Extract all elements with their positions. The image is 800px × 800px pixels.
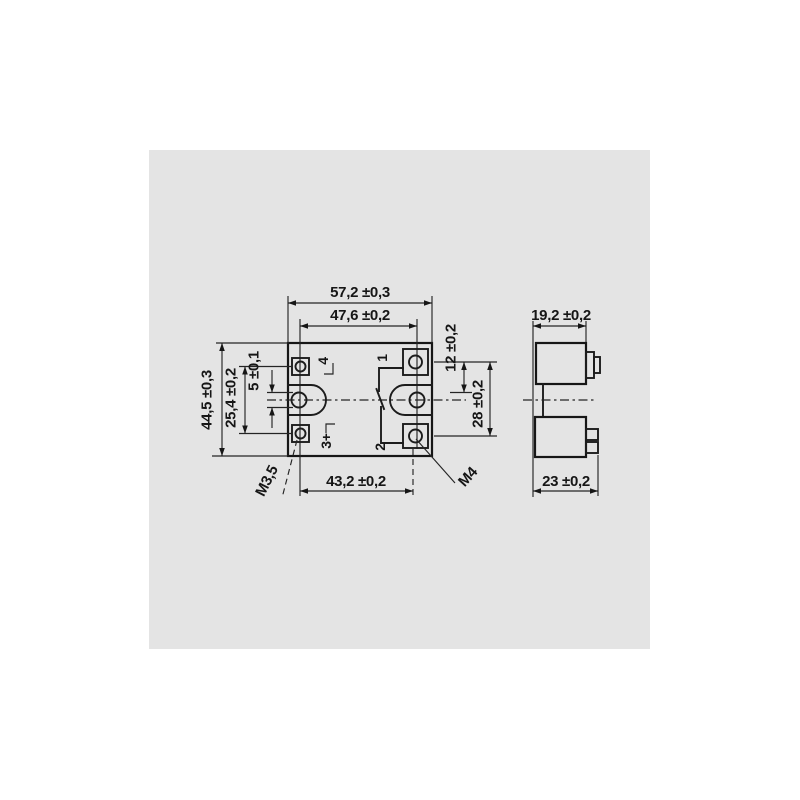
terminal-3-label: 3+ [318, 433, 334, 448]
dim-body-width: 57,2 ±0,3 [330, 284, 390, 301]
dim-overall-depth: 23 ±0,2 [542, 473, 590, 490]
dim-terminal-span: 43,2 ±0,2 [326, 473, 386, 490]
dim-terminal1-offset: 12 ±0,2 [443, 324, 460, 372]
terminal-1-label: 1 [374, 354, 390, 362]
dim-body-depth: 19,2 ±0,2 [531, 307, 591, 324]
page: 4 3+ 1 2 57,2 ±0,3 47,6 ±0,2 44,5 ±0,3 2… [0, 0, 800, 800]
dim-input-terminal-pitch: 25,4 ±0,2 [223, 368, 240, 428]
dim-mounting-hole-span: 47,6 ±0,2 [330, 307, 390, 324]
dim-output-terminal-pitch: 28 ±0,2 [470, 380, 487, 428]
dim-mounting-hole-diameter: 5 ±0,1 [246, 351, 263, 391]
terminal-2-label: 2 [372, 443, 388, 451]
terminal-4-label: 4 [315, 357, 331, 365]
dim-body-height: 44,5 ±0,3 [199, 370, 216, 430]
technical-drawing: 4 3+ 1 2 57,2 ±0,3 47,6 ±0,2 44,5 ±0,3 2… [0, 0, 800, 800]
